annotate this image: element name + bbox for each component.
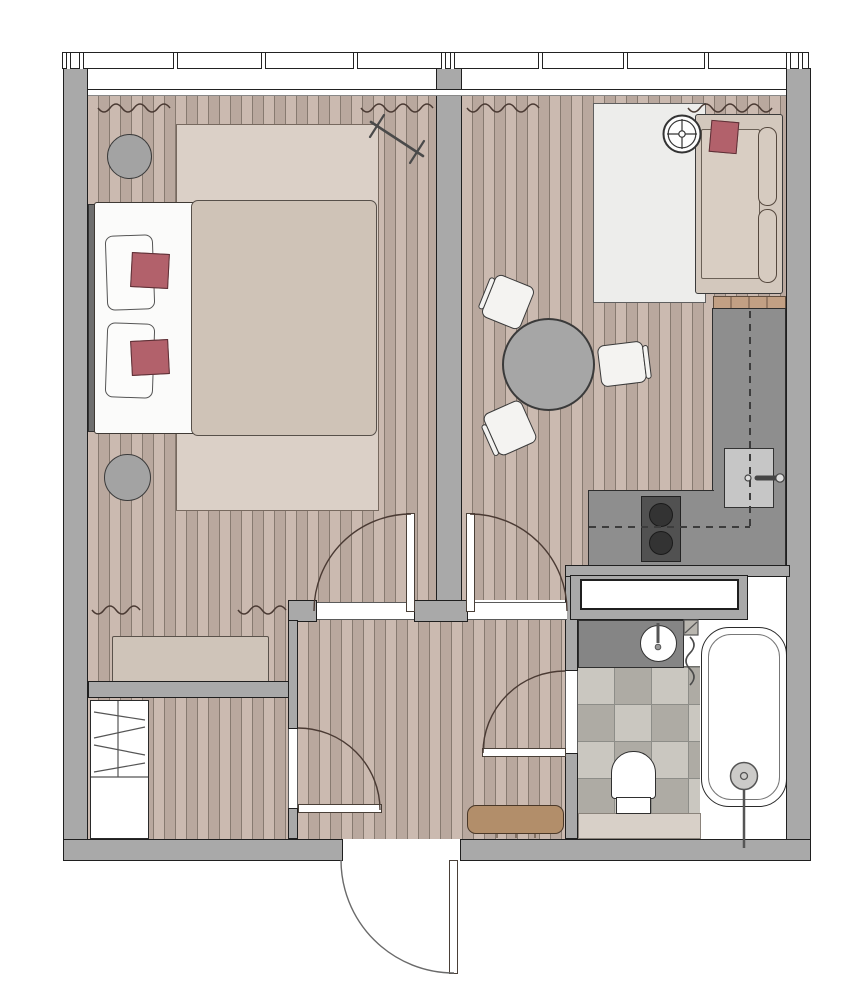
bedside-stool — [104, 454, 151, 501]
dresser-bench — [112, 636, 269, 683]
bedroom-door-opening — [317, 602, 414, 620]
window-sill — [88, 89, 786, 96]
kitchen-sink — [724, 448, 774, 508]
living-door-leaf — [466, 513, 475, 612]
wall-right — [786, 68, 811, 860]
window-mullion — [798, 53, 803, 69]
wall-left — [63, 68, 88, 860]
window-mullion — [261, 53, 266, 69]
wardrobe — [90, 700, 149, 839]
window-mullion — [66, 53, 71, 69]
sofa-back-cushion — [758, 209, 777, 283]
window-mullion — [538, 53, 543, 69]
living-rug — [593, 103, 706, 303]
accent-cushion — [130, 252, 170, 289]
sofa-back-cushion — [758, 127, 777, 206]
living-door-opening — [468, 602, 567, 620]
accent-cushion — [130, 339, 170, 376]
sofa-cushion — [709, 120, 740, 154]
bathroom-door-opening — [565, 671, 578, 753]
wall-bottom-right — [460, 839, 811, 861]
kitchen-counter-right — [712, 308, 786, 567]
wall-partition — [436, 68, 462, 612]
wall-closet-east-upper — [288, 620, 298, 729]
window-mullion — [353, 53, 358, 69]
entrance-door-leaf — [449, 860, 458, 974]
built-in-cabinet — [580, 579, 739, 610]
window-mullion — [786, 53, 791, 69]
bathroom-door-leaf — [482, 748, 566, 757]
bedroom-door-leaf — [406, 513, 415, 612]
wall-bedroom-closet — [88, 681, 290, 698]
wall-partition-foot — [414, 600, 468, 622]
window-mullion — [623, 53, 628, 69]
wall-bottom-left — [63, 839, 343, 861]
wash-basin — [640, 625, 677, 662]
burner — [649, 531, 673, 555]
wall-bedroom-south-stub — [288, 600, 317, 622]
window-mullion — [450, 53, 455, 69]
burner — [649, 503, 673, 527]
cooktop — [641, 496, 681, 562]
window-mullion — [704, 53, 709, 69]
window-mullion — [441, 53, 446, 69]
window-mullion — [173, 53, 178, 69]
wall-closet-east-lower — [288, 808, 298, 839]
window-mullion — [79, 53, 84, 69]
toilet-base — [616, 797, 651, 814]
closet-door-opening — [288, 729, 298, 808]
wall-bath-west-lower — [565, 753, 578, 839]
duvet — [191, 200, 377, 436]
sofa — [695, 114, 783, 294]
entrance-opening — [344, 840, 459, 860]
bathtub-inner — [708, 634, 780, 800]
hallway-bench — [467, 805, 564, 834]
bath-mat — [578, 813, 701, 839]
floor-plan — [0, 0, 863, 1000]
dining-chair — [597, 340, 648, 387]
toilet — [611, 751, 656, 799]
closet-door-leaf — [298, 804, 382, 813]
entrance-door-arc — [341, 860, 454, 973]
dining-table — [502, 318, 595, 411]
bedside-stool — [107, 134, 152, 179]
